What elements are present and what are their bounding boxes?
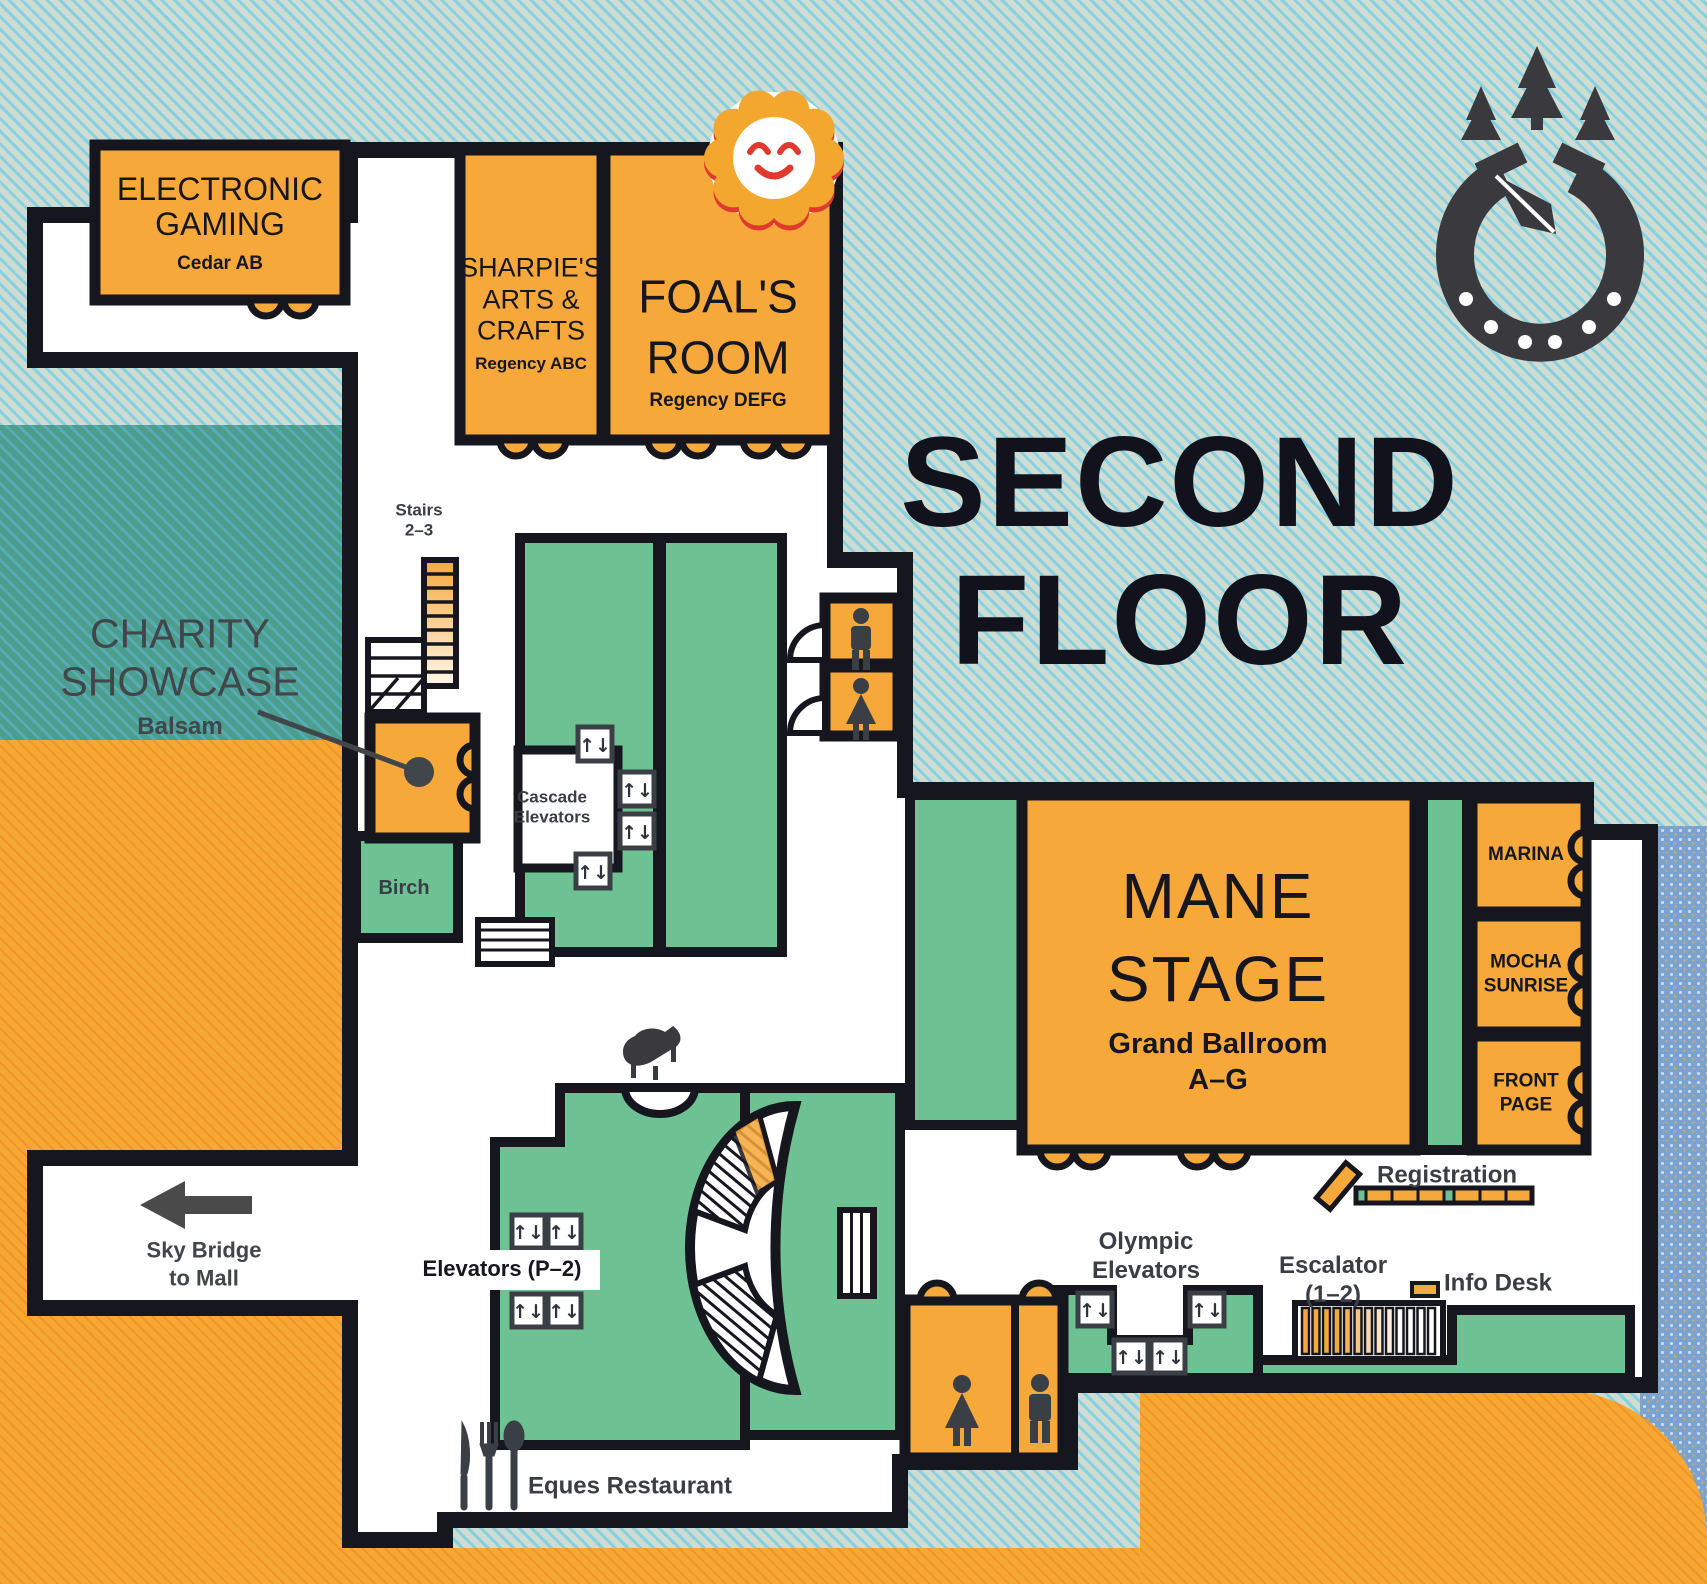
sharpies-label: SHARPIE'S ARTS & CRAFTS [460,253,602,348]
floor-map-canvas: ↑↓ ↑↓ ↑↓ ↑↓ ↑↓ ↑↓ ↑↓ ↑↓ ↑↓ ↑↓ ↑↓ ↑↓ [0,0,1707,1584]
green-strip-mane [1423,795,1467,1150]
pine-trees-icon [1461,46,1615,140]
electronic-gaming-sublabel: Cedar AB [177,253,263,275]
stairs-2-3-label: Stairs 2–3 [395,501,442,542]
elevator-icon: ↑↓ [548,1301,580,1323]
sharpies-sublabel: Regency ABC [475,354,587,374]
eques-restaurant-label: Eques Restaurant [528,1473,732,1502]
green-room-left-of-mane [910,795,1022,1125]
olympic-elevators-label: Olympic Elevators [1092,1228,1200,1286]
elevator-icon: ↑↓ [577,862,609,884]
mane-stage-sublabel: Grand Ballroom A–G [1108,1026,1327,1099]
registration-label: Registration [1377,1162,1517,1191]
elevators-p2-label: Elevators (P–2) [423,1256,582,1282]
elevator-icon: ↑↓ [1079,1300,1111,1322]
page-title: SECOND FLOOR [900,414,1460,690]
stairs-icon-small [478,920,552,964]
escalator-icon [1295,1303,1443,1359]
info-desk-label: Info Desk [1444,1270,1552,1299]
elevator-icon: ↑↓ [548,1222,580,1244]
elevator-icon: ↑↓ [1152,1347,1184,1369]
front-page-label: FRONT PAGE [1493,1069,1558,1117]
elevator-icon: ↑↓ [1115,1347,1147,1369]
elevator-icon: ↑↓ [512,1301,544,1323]
mane-stage-label: MANE STAGE [1107,855,1329,1021]
marina-label: MARINA [1488,844,1564,866]
birch-label: Birch [378,876,429,900]
info-desk-marker [1412,1283,1438,1296]
elevator-icon: ↑↓ [579,735,611,757]
elevator-icon: ↑↓ [621,822,653,844]
elevator-icon: ↑↓ [1191,1300,1223,1322]
foals-sublabel: Regency DEFG [649,390,786,412]
elevator-icon: ↑↓ [512,1222,544,1244]
electronic-gaming-label: ELECTRONIC GAMING [117,172,323,242]
curved-wall-notch [625,1088,695,1114]
elevator-icon: ↑↓ [621,780,653,802]
mocha-sunrise-label: MOCHA SUNRISE [1484,950,1568,998]
horseshoe-compass-logo [1455,46,1625,349]
cascade-elevators-label: Cascade Elevators [514,788,591,829]
foals-label: FOAL'S ROOM [638,266,798,387]
location-dot [404,757,434,787]
charity-showcase-sublabel: Balsam [137,713,222,741]
sky-bridge-label: Sky Bridge to Mall [147,1237,262,1292]
escalator-label: Escalator (1–2) [1279,1252,1387,1310]
sun-icon [704,91,844,231]
charity-showcase-label: CHARITY SHOWCASE [60,610,299,707]
